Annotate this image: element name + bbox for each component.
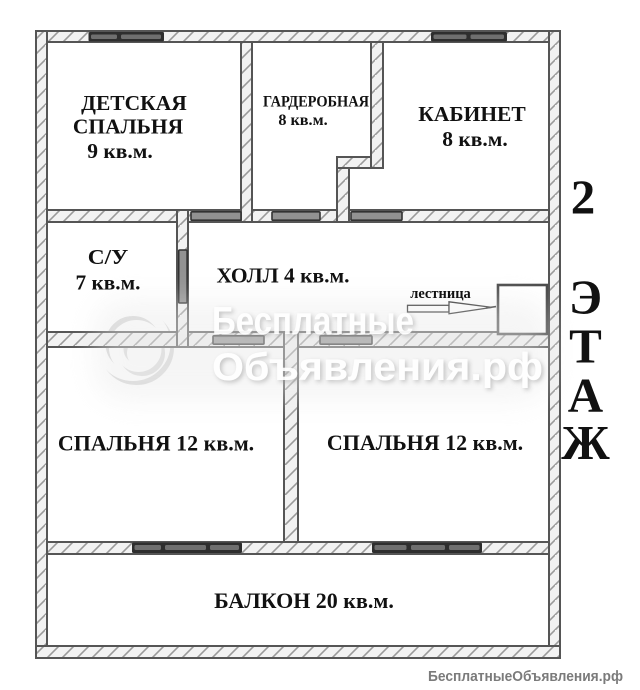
svg-text:ДЕТСКАЯ: ДЕТСКАЯ xyxy=(81,91,187,115)
svg-text:КАБИНЕТ: КАБИНЕТ xyxy=(418,102,526,126)
svg-text:ГАРДЕРОБНАЯ: ГАРДЕРОБНАЯ xyxy=(263,93,369,111)
svg-text:2: 2 xyxy=(571,170,596,225)
svg-text:Бесплатные: Бесплатные xyxy=(212,300,414,343)
svg-text:СПАЛЬНЯ: СПАЛЬНЯ xyxy=(73,115,184,139)
svg-text:СПАЛЬНЯ 12 кв.м.: СПАЛЬНЯ 12 кв.м. xyxy=(58,431,254,456)
svg-text:9 кв.м.: 9 кв.м. xyxy=(87,139,153,163)
svg-text:Объявления.рф: Объявления.рф xyxy=(212,346,543,389)
svg-text:Т: Т xyxy=(569,319,602,374)
svg-text:8 кв.м.: 8 кв.м. xyxy=(442,127,508,151)
svg-text:БАЛКОН 20 кв.м.: БАЛКОН 20 кв.м. xyxy=(214,588,394,613)
svg-text:ХОЛЛ 4 кв.м.: ХОЛЛ 4 кв.м. xyxy=(216,264,349,288)
svg-text:СПАЛЬНЯ 12 кв.м.: СПАЛЬНЯ 12 кв.м. xyxy=(327,430,523,455)
svg-text:БесплатныеОбъявления.рф: БесплатныеОбъявления.рф xyxy=(428,669,623,685)
svg-text:7 кв.м.: 7 кв.м. xyxy=(76,271,141,295)
svg-text:Э: Э xyxy=(569,270,602,325)
svg-text:С/У: С/У xyxy=(88,245,129,269)
svg-text:8 кв.м.: 8 кв.м. xyxy=(278,111,327,129)
svg-text:Ж: Ж xyxy=(561,415,610,470)
svg-text:лестница: лестница xyxy=(410,286,471,302)
